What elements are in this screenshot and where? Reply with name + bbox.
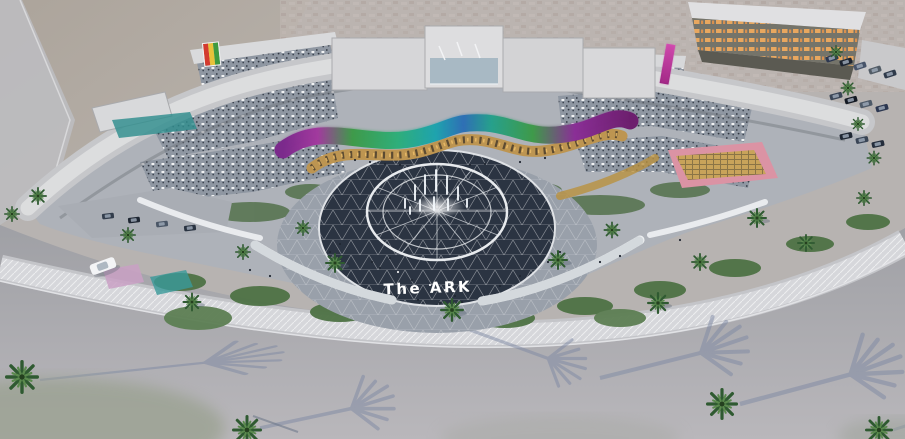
aerial-render-image: The ARK (0, 0, 905, 439)
striped-sign (202, 42, 220, 67)
ark-logo-text: The ARK (383, 277, 472, 298)
rooftop-terrace-glass (430, 58, 498, 84)
render-canvas: The ARK (0, 0, 905, 439)
